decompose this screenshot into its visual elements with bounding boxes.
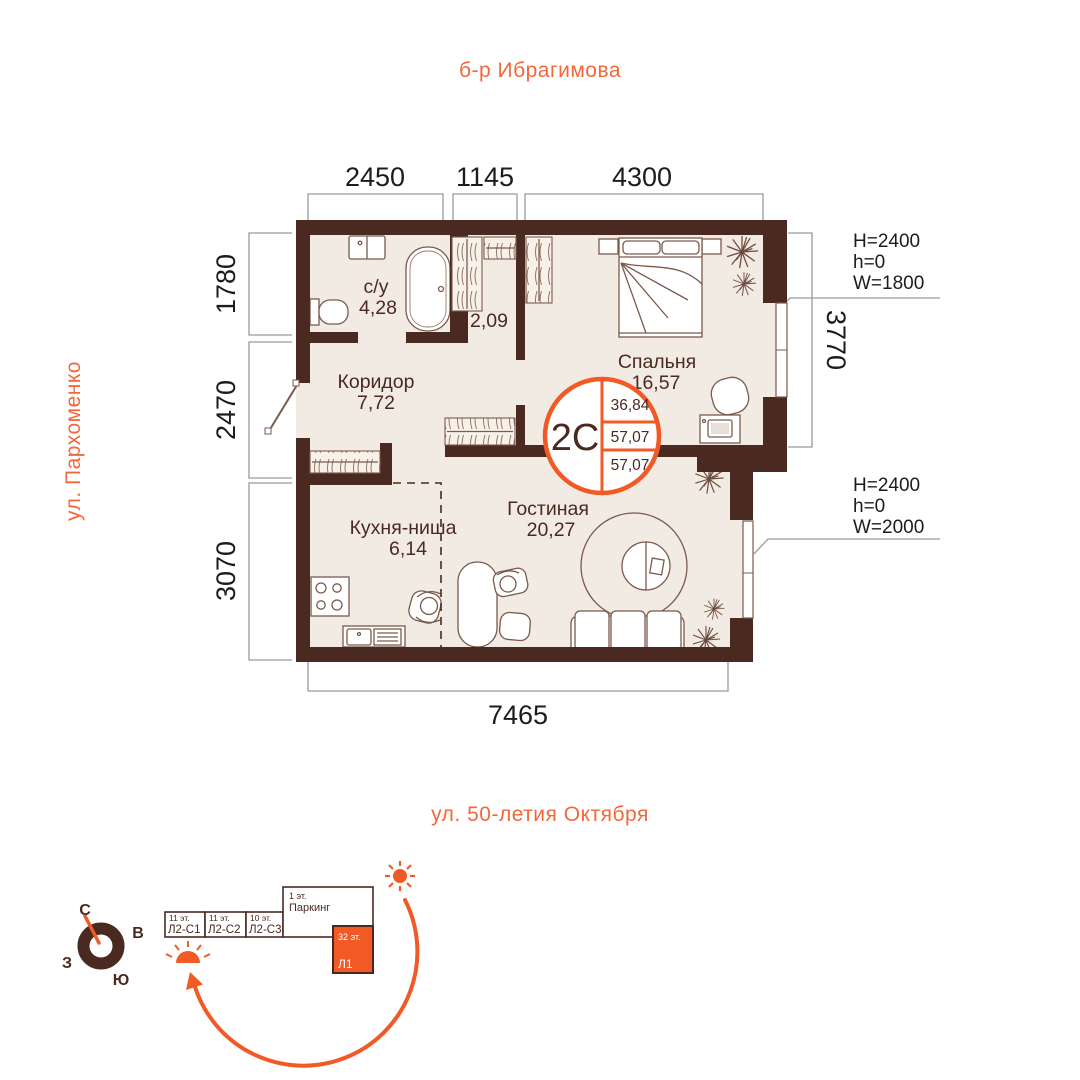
dim-top-2: 1145: [456, 162, 514, 192]
building-2-floors: 11 эт.: [209, 913, 230, 923]
compass-south: Ю: [113, 972, 130, 989]
sun-rising-icon: [166, 941, 210, 963]
badge-value-2: 57,07: [611, 429, 650, 446]
dim-left-1: 1780: [211, 254, 241, 314]
room-bathroom-name: с/у: [364, 276, 389, 298]
room-living-area: 20,27: [527, 519, 576, 541]
bedroom-wardrobe: [526, 237, 552, 303]
tower-name: Л1: [338, 957, 353, 971]
window-annotation-1: H=2400 h=0 W=1800: [853, 231, 924, 294]
parking-floors: 1 эт.: [289, 891, 307, 901]
badge-apartment-type: 2С: [551, 417, 600, 459]
apartment-badge: 2С 36,84 57,07 57,07: [545, 379, 659, 493]
dim-left-3: 3070: [211, 541, 241, 601]
bedroom-window: [776, 303, 787, 397]
dim-top-1: 2450: [345, 162, 405, 192]
living-window: [743, 521, 753, 618]
building-3-floors: 10 эт.: [250, 913, 271, 923]
entrance-door: [265, 380, 299, 434]
compass-north: С: [79, 902, 91, 919]
street-label-top: б-р Ибрагимова: [459, 59, 621, 82]
badge-value-1: 36,84: [611, 397, 650, 414]
dim-right-1: 3770: [821, 310, 851, 370]
floorplan-svg: б-р Ибрагимова ул. Пархоменко ул. 50-лет…: [0, 0, 1080, 1080]
window1-sill: h=0: [853, 252, 885, 273]
compass-west: З: [62, 955, 72, 972]
corridor-wardrobe: [445, 418, 515, 445]
dim-bottom-1: 7465: [488, 700, 548, 730]
site-plan: С В З Ю 11 эт. Л2-С1 11 эт. Л2-С2 10 эт.…: [62, 861, 417, 1066]
window2-sill: h=0: [853, 496, 885, 517]
window-annotation-2: H=2400 h=0 W=2000: [853, 475, 924, 538]
room-kitchen-area: 6,14: [389, 538, 427, 560]
room-corridor-area: 7,72: [357, 392, 395, 414]
room-closet-area: 2,09: [470, 310, 508, 332]
room-bedroom-name: Спальня: [618, 351, 696, 373]
dim-top-3: 4300: [612, 162, 672, 192]
dim-left-2: 2470: [211, 380, 241, 440]
tower-floors: 32 эт.: [338, 932, 361, 942]
closet-wardrobe-vertical: [452, 237, 482, 311]
room-corridor-name: Коридор: [337, 371, 414, 393]
floorplan-page: б-р Ибрагимова ул. Пархоменко ул. 50-лет…: [0, 0, 1080, 1080]
closet-wardrobe-horizontal: [484, 237, 516, 259]
building-1-floors: 11 эт.: [169, 913, 190, 923]
window1-height: H=2400: [853, 231, 920, 252]
room-bathroom-area: 4,28: [359, 297, 397, 319]
room-kitchen-name: Кухня-ниша: [350, 517, 457, 539]
compass-east: В: [132, 925, 144, 942]
window1-width: W=1800: [853, 273, 924, 294]
room-living-name: Гостиная: [507, 498, 589, 520]
kitchen-wardrobe: [310, 451, 380, 473]
sun-full-icon: [385, 861, 415, 891]
parking-name: Паркинг: [289, 902, 330, 914]
building-3-name: Л2-С3: [249, 924, 281, 936]
building-1-name: Л2-С1: [168, 924, 200, 936]
window2-width: W=2000: [853, 517, 924, 538]
building-2-name: Л2-С2: [208, 924, 240, 936]
street-label-left: ул. Пархоменко: [62, 361, 85, 521]
window2-height: H=2400: [853, 475, 920, 496]
compass: С В З Ю: [62, 902, 144, 989]
badge-value-3: 57,07: [611, 457, 650, 474]
street-label-bottom: ул. 50-летия Октября: [431, 803, 649, 826]
